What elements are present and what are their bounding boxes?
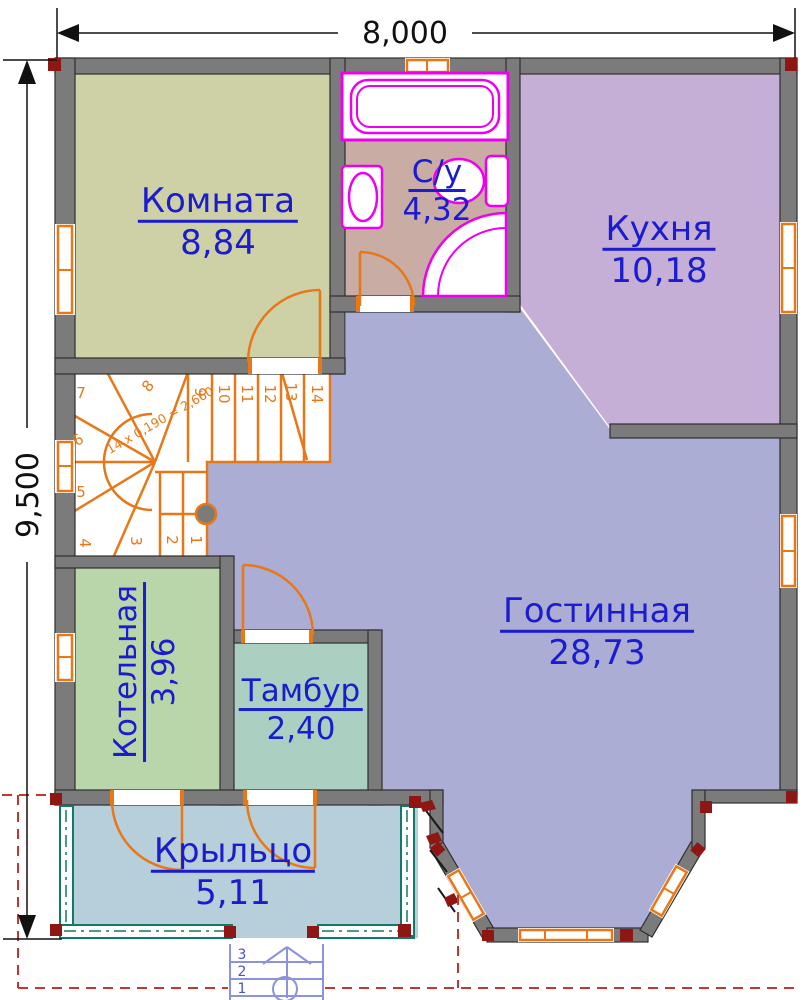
- tread-3: 3: [127, 536, 145, 546]
- room-name: Гостинная: [500, 593, 694, 633]
- stairs-window-icon: [55, 440, 75, 493]
- room-label-kuhnya: Кухня 10,18: [602, 211, 715, 289]
- room-area: 2,40: [239, 714, 363, 747]
- room-label-kotelnaya: Котельная 3,96: [110, 582, 182, 762]
- room-area: 5,11: [151, 875, 315, 912]
- room-name: Котельная: [110, 582, 146, 762]
- room-label-tambur: Тамбур 2,40: [239, 675, 363, 747]
- room-area: 3,96: [149, 582, 182, 762]
- room-name: Крыльцо: [151, 833, 315, 873]
- room-name: С/у: [409, 156, 465, 192]
- room-label-su: С/у 4,32: [402, 156, 471, 228]
- tread-1: 1: [187, 535, 205, 545]
- bathtub-icon: [342, 73, 508, 140]
- arrow-down-icon: [18, 915, 36, 939]
- tread-2: 2: [163, 535, 181, 545]
- tread-5: 5: [76, 483, 86, 501]
- dimension-width-label: 8,000: [362, 16, 448, 51]
- porch-step-3: 3: [238, 947, 247, 963]
- dimension-left: 9,500: [3, 60, 62, 939]
- tread-4: 4: [76, 538, 94, 548]
- room-area: 28,73: [500, 635, 694, 672]
- room-area: 10,18: [602, 253, 715, 290]
- tread-10: 10: [215, 384, 233, 403]
- wall-tambur-right: [368, 630, 382, 805]
- wall-bay-right-vert: [692, 790, 705, 848]
- room-label-gostinnaya: Гостинная 28,73: [500, 593, 694, 671]
- sink-icon: [342, 166, 382, 228]
- wall-left: [55, 58, 75, 805]
- kitchen-window-icon: [780, 222, 797, 314]
- tread-11: 11: [238, 384, 256, 403]
- room-area: 8,84: [138, 225, 298, 262]
- room-label-krylco: Крыльцо 5,11: [151, 833, 315, 911]
- dimension-top: 8,000: [57, 8, 795, 58]
- kotelnaya-window-icon: [55, 633, 75, 682]
- bay-bottom-window-icon: [518, 928, 614, 942]
- wall-stairs-kotelnaya: [55, 556, 232, 568]
- outdoor-steps: 3 2 1: [230, 944, 323, 1000]
- living-window-icon: [780, 514, 797, 588]
- dimension-height-label: 9,500: [11, 452, 46, 538]
- room-name: Комната: [138, 183, 298, 223]
- floor-plan-svg: 1 2 3 4 5 6 7 8 9 10 11 12 13 14 14 x 0,…: [0, 0, 803, 1000]
- room-name: Кухня: [602, 211, 715, 251]
- tread-12: 12: [261, 384, 279, 403]
- floor-plan: 1 2 3 4 5 6 7 8 9 10 11 12 13 14 14 x 0,…: [0, 0, 803, 1000]
- wall-kotelnaya-right: [220, 556, 234, 805]
- tread-13: 13: [282, 382, 300, 401]
- arrow-up-icon: [18, 60, 36, 84]
- wall-kitchen-bottom: [610, 424, 797, 438]
- room-name: Тамбур: [239, 675, 363, 711]
- stairs-newel-post: [196, 504, 216, 524]
- arrow-right-icon: [773, 24, 795, 42]
- arrow-left-icon: [57, 24, 79, 42]
- room-area: 4,32: [402, 195, 471, 228]
- porch-step-1: 1: [238, 981, 247, 997]
- tread-14: 14: [308, 384, 326, 403]
- tread-7: 7: [76, 384, 86, 402]
- porch-step-2: 2: [238, 964, 247, 980]
- komnata-window-icon: [55, 224, 75, 315]
- room-label-komnata: Комната 8,84: [138, 183, 298, 261]
- wall-bottom-right: [705, 790, 797, 803]
